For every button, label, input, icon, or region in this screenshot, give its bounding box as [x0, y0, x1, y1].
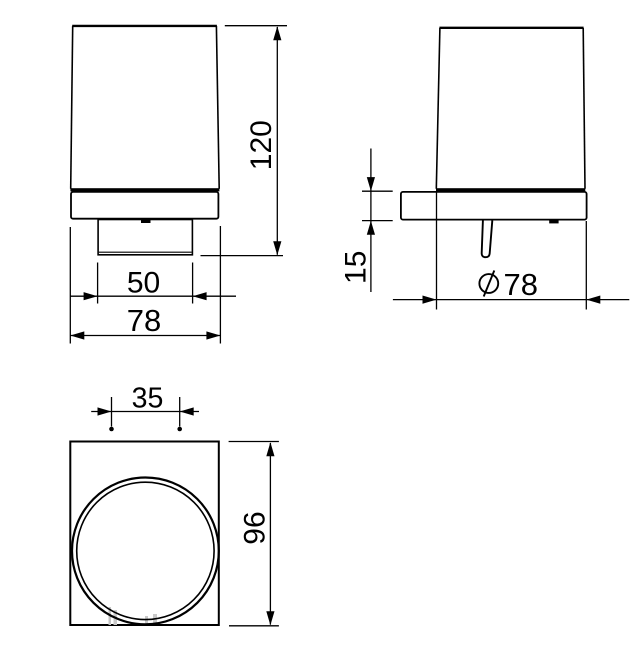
- svg-text:120: 120: [245, 120, 278, 170]
- svg-text:50: 50: [127, 266, 160, 299]
- svg-text:78: 78: [127, 303, 161, 338]
- svg-text:96: 96: [238, 511, 271, 544]
- svg-text:15: 15: [340, 251, 373, 284]
- svg-text:35: 35: [132, 382, 164, 414]
- svg-text:78: 78: [504, 267, 538, 302]
